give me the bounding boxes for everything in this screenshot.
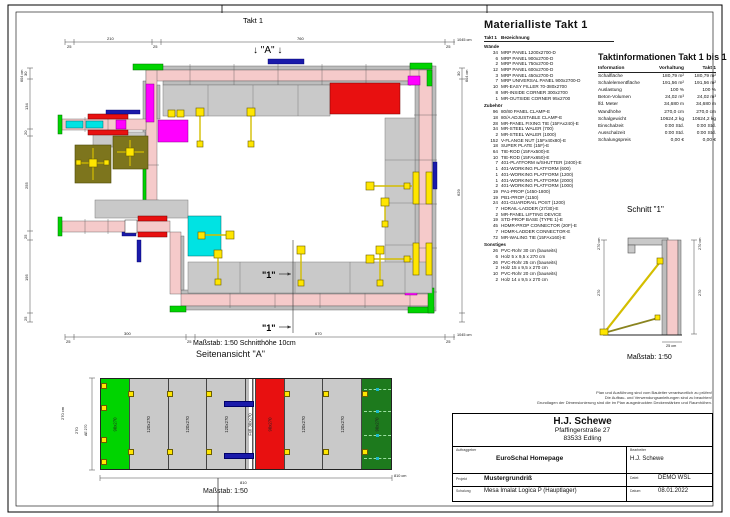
dim-left: 30 134 20 255 25 195 25 604 cm bbox=[20, 68, 33, 322]
dim-right-total: 604 cm bbox=[465, 70, 469, 82]
formwork-value: Mesa Imalat Logica P (Hauptlager) bbox=[484, 488, 577, 494]
takt-info-row: Auslastung 100 % 100 % bbox=[598, 87, 716, 94]
clamp-icon bbox=[167, 391, 173, 397]
disclaimer-line: Grundlagen der Dimensionierung sind die … bbox=[430, 400, 712, 405]
formwork-panel: 120x270 bbox=[323, 379, 362, 469]
clamp-icon bbox=[323, 391, 329, 397]
ti-label: Einschalzeit bbox=[598, 123, 646, 130]
sv-dim-bottom-total: 810 cm bbox=[394, 474, 406, 478]
file-value: DEMO WSL bbox=[658, 475, 691, 481]
formwork-panel: 120x270 bbox=[130, 379, 169, 469]
waler-bar bbox=[224, 453, 254, 459]
svg-text:25: 25 bbox=[67, 44, 72, 49]
takt-info-header: Information Vorhaltung Takt 1 bbox=[598, 65, 716, 73]
ti-col-takt1: Takt 1 bbox=[684, 65, 716, 72]
item-qty: 72 bbox=[484, 235, 498, 241]
title-block-row-client: Auftraggeber EuroSchal Homepage Bearbeit… bbox=[453, 447, 712, 474]
takt-info-rows: Schalfläche 180,79 m² 180,79 m² Schalele… bbox=[598, 73, 716, 144]
material-list-title: Materialliste Takt 1 bbox=[484, 19, 699, 31]
ti-vorhaltung: 0:00 Std. bbox=[646, 123, 684, 130]
ti-takt1: 180,79 m² bbox=[684, 73, 716, 80]
title-block-row-formwork: Schalung Mesa Imalat Logica P (Hauptlage… bbox=[453, 487, 712, 501]
clamp-icon bbox=[284, 449, 290, 455]
svg-text:25: 25 bbox=[153, 44, 158, 49]
title-block-row-project: Projekt Mustergrundriß Datei: DEMO WSL bbox=[453, 474, 712, 487]
ti-col-label: Information bbox=[598, 65, 646, 72]
formwork-panel: 120x270 bbox=[169, 379, 208, 469]
view-a-arrows: ↓ "A" ↓ bbox=[253, 45, 282, 56]
plan-sheet: Takt 1 ↓ "A" ↓ 25 210 25 760 25 1045 cm … bbox=[0, 0, 730, 517]
section-marker-1a: "1" bbox=[262, 270, 276, 280]
ti-vorhaltung: 191,56 m² bbox=[646, 80, 684, 87]
dim-left-total: 604 cm bbox=[20, 70, 24, 82]
clamp-icon bbox=[167, 449, 173, 455]
clamp-icon bbox=[128, 391, 134, 397]
company-name: H.J. Schewe bbox=[453, 416, 712, 427]
takt-info-row: Ausschalzeit 0:00 Std. 0:00 Std. bbox=[598, 130, 716, 137]
title-block: H.J. Schewe Pfaffingerstraße 27 83533 Ed… bbox=[452, 413, 713, 502]
clamp-icon bbox=[323, 449, 329, 455]
material-list-row: 2 Holz 14 x 9,5 x 270 cm bbox=[484, 277, 699, 283]
col-bezeichnung: Bezeichnung bbox=[501, 35, 530, 40]
side-view-scale: Maßstab: 1:50 bbox=[203, 488, 248, 495]
material-list-row: 72 MR-WALING TIE (15FAx160)-E bbox=[484, 235, 699, 241]
project-value: Mustergrundriß bbox=[484, 475, 532, 482]
ti-takt1: 10624,2 kg bbox=[684, 116, 716, 123]
clamp-icon bbox=[362, 391, 368, 397]
ti-label: Schalfläche bbox=[598, 73, 646, 80]
ti-takt1: 0:00 Std. bbox=[684, 123, 716, 130]
item-name: Holz 14 x 9,5 x 270 cm bbox=[501, 277, 548, 283]
ti-vorhaltung: 100 % bbox=[646, 87, 684, 94]
ti-takt1: 270,0 cm bbox=[684, 109, 716, 116]
ti-label: lfd. Meter bbox=[598, 101, 646, 108]
takt-info-row: Schalfläche 180,79 m² 180,79 m² bbox=[598, 73, 716, 80]
ti-vorhaltung: 0,00 € bbox=[646, 137, 684, 144]
company-city: 83533 Edling bbox=[453, 435, 712, 443]
ti-label: Schalungspreis bbox=[598, 137, 646, 144]
takt-info-row: Schalungspreis 0,00 € 0,00 € bbox=[598, 137, 716, 144]
svg-text:670: 670 bbox=[315, 331, 322, 336]
clamp-icon bbox=[101, 437, 107, 443]
clamp-icon bbox=[101, 459, 107, 465]
formwork-panel: 120x270 bbox=[285, 379, 324, 469]
ti-takt1: 191,56 m² bbox=[684, 80, 716, 87]
panel-label: 120x270 bbox=[301, 416, 306, 433]
ti-takt1: 34,680 m bbox=[684, 101, 716, 108]
ti-vorhaltung: 270,0 cm bbox=[646, 109, 684, 116]
takt-info-title: Taktinformationen Takt 1 bis 1 bbox=[598, 52, 716, 62]
client-value: EuroSchal Homepage bbox=[496, 455, 626, 462]
ti-vorhaltung: 10624,2 kg bbox=[646, 116, 684, 123]
plan-title: Takt 1 bbox=[243, 16, 263, 25]
anchor-dot bbox=[376, 410, 379, 413]
panel-label: 90x270 bbox=[267, 417, 272, 431]
section-marker-1b: "1" bbox=[262, 323, 276, 333]
takt-info-row: Beton-Volumen 24,02 m³ 24,02 m³ bbox=[598, 94, 716, 101]
svg-text:210: 210 bbox=[107, 36, 114, 41]
clamp-icon bbox=[101, 383, 107, 389]
schnitt-scale: Maßstab: 1:50 bbox=[627, 354, 672, 361]
panel-label: 120x270 bbox=[185, 416, 190, 433]
ti-label: Beton-Volumen bbox=[598, 94, 646, 101]
sv-edge-label: AE 270 bbox=[84, 424, 88, 436]
takt-info-row: Einschalzeit 0:00 Std. 0:00 Std. bbox=[598, 123, 716, 130]
date-label: Datum: bbox=[630, 489, 658, 493]
schnitt-prop-small bbox=[604, 318, 658, 333]
dim-bottom-total: 1045 cm bbox=[457, 333, 472, 337]
date-value: 08.01.2022 bbox=[658, 488, 688, 494]
clamp-icon bbox=[362, 449, 368, 455]
item-name: MR-OUTSIDE CORNER 95x2700 bbox=[501, 96, 570, 102]
takt-info-row: Schalelementfläche 191,56 m² 191,56 m² bbox=[598, 80, 716, 87]
formwork-panel: 90x270 bbox=[256, 379, 285, 469]
clamp-icon bbox=[128, 449, 134, 455]
clamp-icon bbox=[284, 391, 290, 397]
takt-info-row: Wandhöhe 270,0 cm 270,0 cm bbox=[598, 109, 716, 116]
svg-text:25: 25 bbox=[23, 316, 28, 321]
ti-vorhaltung: 180,79 m² bbox=[646, 73, 684, 80]
title-block-header: H.J. Schewe Pfaffingerstraße 27 83533 Ed… bbox=[453, 414, 712, 447]
ti-takt1: 0,00 € bbox=[684, 137, 716, 144]
ti-takt1: 24,02 m³ bbox=[684, 94, 716, 101]
svg-text:195: 195 bbox=[24, 274, 29, 281]
svg-text:25: 25 bbox=[23, 234, 28, 239]
svg-text:629: 629 bbox=[456, 189, 461, 196]
svg-text:25: 25 bbox=[66, 339, 71, 344]
clamp-icon bbox=[206, 449, 212, 455]
clamp-icon bbox=[206, 391, 212, 397]
clamp-icon bbox=[101, 405, 107, 411]
ti-label: Ausschalzeit bbox=[598, 130, 646, 137]
svg-text:25: 25 bbox=[446, 339, 451, 344]
side-view-title: Seitenansicht "A" bbox=[196, 349, 265, 359]
takt-info: Taktinformationen Takt 1 bis 1 Informati… bbox=[598, 52, 716, 144]
plan-view: Takt 1 ↓ "A" ↓ 25 210 25 760 25 1045 cm … bbox=[20, 16, 472, 347]
takt-info-row: lfd. Meter 34,680 m 34,680 m bbox=[598, 101, 716, 108]
formwork-label: Schalung bbox=[456, 489, 484, 493]
panel-label: 90x270 bbox=[112, 417, 117, 431]
svg-text:25: 25 bbox=[446, 44, 451, 49]
col-takt: Takt 1 bbox=[484, 35, 501, 40]
ti-label: Schalgewicht bbox=[598, 116, 646, 123]
dim-right: 30 629 604 cm bbox=[456, 68, 469, 322]
client-label: Auftraggeber bbox=[456, 448, 626, 452]
company-street: Pfaffingerstraße 27 bbox=[453, 427, 712, 435]
ti-col-vorhaltung: Vorhaltung bbox=[646, 65, 684, 72]
svg-text:300: 300 bbox=[124, 331, 131, 336]
panel-label: 90x270 bbox=[374, 417, 379, 431]
item-name: MR-WALING TIE (15FAx160)-E bbox=[501, 235, 566, 241]
editor-value: H.J. Schewe bbox=[630, 456, 712, 462]
anchor-dot bbox=[376, 434, 379, 437]
svg-text:30: 30 bbox=[456, 71, 461, 76]
ti-vorhaltung: 0:00 Std. bbox=[646, 130, 684, 137]
material-list-header: Takt 1 Bezeichnung bbox=[484, 35, 614, 42]
ti-label: Auslastung bbox=[598, 87, 646, 94]
svg-text:255: 255 bbox=[24, 182, 29, 189]
svg-text:25 cm: 25 cm bbox=[666, 344, 676, 348]
svg-text:760: 760 bbox=[297, 36, 304, 41]
svg-text:134: 134 bbox=[24, 103, 29, 110]
sv-dim-bottom: 810 bbox=[240, 480, 247, 485]
ti-label: Schalelementfläche bbox=[598, 80, 646, 87]
editor-label: Bearbeiter bbox=[630, 448, 712, 452]
ti-takt1: 100 % bbox=[684, 87, 716, 94]
item-qty: 1 bbox=[484, 96, 498, 102]
takt-info-row: Schalgewicht 10624,2 kg 10624,2 kg bbox=[598, 116, 716, 123]
panel-label: 120x270 bbox=[146, 416, 151, 433]
anchor-dot bbox=[376, 457, 379, 460]
plan-scale-note: Maßstab: 1:50 Schnitthöhe 10cm bbox=[193, 340, 296, 347]
panel-label: Füll 30x270 bbox=[248, 413, 253, 435]
ti-takt1: 0:00 Std. bbox=[684, 130, 716, 137]
disclaimer: Plan und Ausführung sind vom Bauleiter v… bbox=[430, 390, 712, 405]
dim-top-total: 1045 cm bbox=[457, 38, 472, 42]
ti-vorhaltung: 34,680 m bbox=[646, 101, 684, 108]
ti-vorhaltung: 24,02 m³ bbox=[646, 94, 684, 101]
project-label: Projekt bbox=[456, 477, 484, 481]
side-view-strip: 90x270 120x270 120x270 120x270 Füll 30x2… bbox=[100, 378, 392, 470]
item-qty: 2 bbox=[484, 277, 498, 283]
filler-openings bbox=[125, 220, 137, 233]
ti-label: Wandhöhe bbox=[598, 109, 646, 116]
panel-label: 120x270 bbox=[340, 416, 345, 433]
svg-text:20: 20 bbox=[23, 130, 28, 135]
panel-label: 120x270 bbox=[224, 416, 229, 433]
sv-dim-left-total: 270 cm bbox=[60, 406, 65, 420]
sv-dim-left: 270 bbox=[74, 427, 79, 434]
waler-bar bbox=[224, 401, 254, 407]
file-label: Datei: bbox=[630, 476, 658, 480]
anchor-dot bbox=[376, 388, 379, 391]
svg-text:270: 270 bbox=[597, 290, 601, 296]
svg-text:25: 25 bbox=[187, 339, 192, 344]
svg-text:270: 270 bbox=[698, 290, 702, 296]
formwork-panel: 90x270 bbox=[101, 379, 130, 469]
